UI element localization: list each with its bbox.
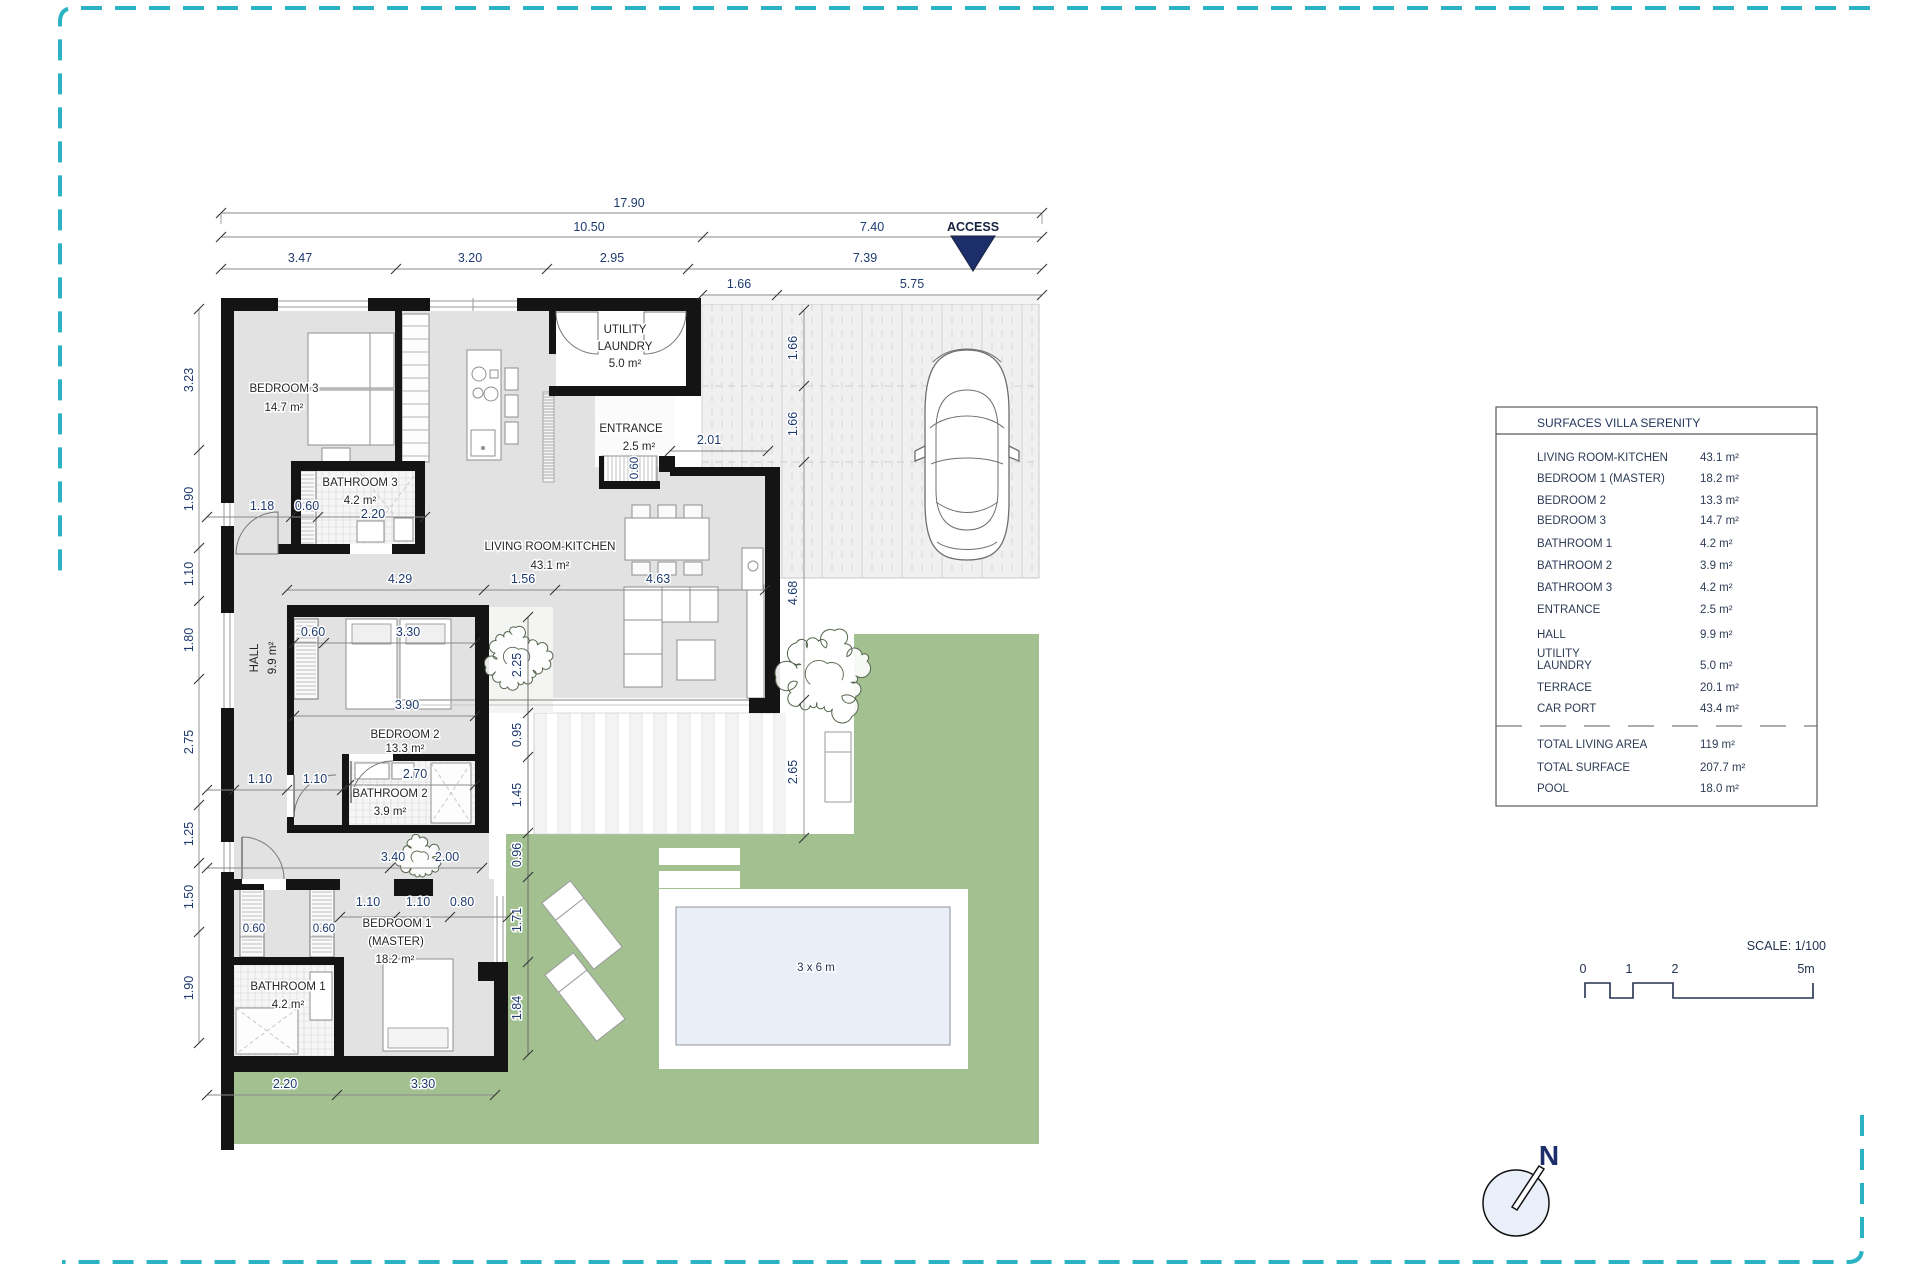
svg-text:ACCESS: ACCESS [947, 220, 999, 234]
svg-text:207.7 m²: 207.7 m² [1700, 762, 1746, 774]
svg-text:2.95: 2.95 [600, 251, 624, 265]
svg-text:5.0 m²: 5.0 m² [1700, 660, 1733, 672]
svg-text:18.2 m²: 18.2 m² [1700, 473, 1739, 485]
svg-text:(MASTER): (MASTER) [368, 936, 424, 948]
svg-text:4.68: 4.68 [786, 581, 800, 605]
svg-text:2.25: 2.25 [510, 653, 524, 677]
svg-text:2.5 m²: 2.5 m² [623, 441, 656, 453]
svg-text:HALL: HALL [249, 643, 261, 672]
svg-text:4.63: 4.63 [646, 572, 670, 586]
svg-text:0.95: 0.95 [510, 723, 524, 747]
svg-text:1.18: 1.18 [250, 499, 274, 513]
svg-text:0: 0 [1580, 962, 1587, 976]
svg-text:2.20: 2.20 [273, 1077, 297, 1091]
svg-text:2.65: 2.65 [786, 760, 800, 784]
svg-text:17.90: 17.90 [613, 196, 644, 210]
svg-text:3.47: 3.47 [288, 251, 312, 265]
svg-text:2.70: 2.70 [403, 767, 427, 781]
svg-text:BATHROOM 3: BATHROOM 3 [322, 477, 397, 489]
svg-text:43.1 m²: 43.1 m² [1700, 452, 1739, 464]
svg-text:BATHROOM 2: BATHROOM 2 [1537, 560, 1612, 572]
svg-text:BEDROOM 1 (MASTER): BEDROOM 1 (MASTER) [1537, 473, 1665, 485]
svg-text:0.96: 0.96 [510, 843, 524, 867]
svg-text:ENTRANCE: ENTRANCE [1537, 604, 1601, 616]
svg-text:9.9 m²: 9.9 m² [1700, 629, 1733, 641]
svg-text:ENTRANCE: ENTRANCE [599, 423, 663, 435]
svg-text:0.60: 0.60 [295, 499, 319, 513]
svg-text:2.5 m²: 2.5 m² [1700, 604, 1733, 616]
svg-text:0.60: 0.60 [243, 923, 265, 935]
svg-text:1.66: 1.66 [786, 412, 800, 436]
svg-text:BEDROOM 1: BEDROOM 1 [362, 918, 431, 930]
svg-text:1.25: 1.25 [182, 822, 196, 846]
svg-text:1.90: 1.90 [182, 976, 196, 1000]
svg-text:3.9 m²: 3.9 m² [1700, 560, 1733, 572]
svg-text:3.23: 3.23 [182, 368, 196, 392]
svg-text:3.90: 3.90 [395, 698, 419, 712]
svg-text:5.0 m²: 5.0 m² [609, 358, 642, 370]
svg-text:1.10: 1.10 [248, 772, 272, 786]
svg-text:TOTAL SURFACE: TOTAL SURFACE [1537, 762, 1630, 774]
svg-text:4.2 m²: 4.2 m² [344, 495, 377, 507]
svg-text:20.1 m²: 20.1 m² [1700, 682, 1739, 694]
svg-text:LAUNDRY: LAUNDRY [1537, 660, 1592, 672]
svg-text:0.60: 0.60 [301, 625, 325, 639]
svg-text:4.2 m²: 4.2 m² [1700, 582, 1733, 594]
svg-text:5.75: 5.75 [900, 277, 924, 291]
svg-text:BATHROOM 2: BATHROOM 2 [352, 788, 427, 800]
svg-text:N: N [1539, 1140, 1559, 1171]
svg-text:2: 2 [1672, 962, 1679, 976]
svg-text:1.80: 1.80 [182, 628, 196, 652]
svg-text:3 x 6 m: 3 x 6 m [797, 962, 835, 974]
svg-text:4.29: 4.29 [388, 572, 412, 586]
svg-text:13.3 m²: 13.3 m² [386, 743, 425, 755]
svg-text:2.20: 2.20 [361, 507, 385, 521]
svg-text:SCALE: 1/100: SCALE: 1/100 [1747, 939, 1826, 953]
svg-text:1.66: 1.66 [727, 277, 751, 291]
svg-text:3.30: 3.30 [411, 1077, 435, 1091]
svg-text:3.20: 3.20 [458, 251, 482, 265]
svg-text:4.2 m²: 4.2 m² [272, 999, 305, 1011]
svg-text:BEDROOM 2: BEDROOM 2 [1537, 495, 1606, 507]
svg-text:BEDROOM 3: BEDROOM 3 [1537, 515, 1606, 527]
svg-text:14.7 m²: 14.7 m² [265, 402, 304, 414]
svg-text:LIVING ROOM-KITCHEN: LIVING ROOM-KITCHEN [485, 541, 616, 553]
svg-text:2.00: 2.00 [435, 850, 459, 864]
svg-text:0.60: 0.60 [313, 923, 335, 935]
svg-text:BATHROOM 1: BATHROOM 1 [250, 981, 325, 993]
svg-text:7.40: 7.40 [860, 220, 884, 234]
svg-text:1.84: 1.84 [510, 996, 524, 1020]
svg-text:0.60: 0.60 [629, 457, 641, 479]
svg-text:TERRACE: TERRACE [1537, 682, 1592, 694]
svg-text:3.30: 3.30 [396, 625, 420, 639]
svg-text:1.50: 1.50 [182, 885, 196, 909]
svg-text:1.10: 1.10 [182, 562, 196, 586]
svg-text:LAUNDRY: LAUNDRY [598, 341, 653, 353]
svg-text:1.90: 1.90 [182, 487, 196, 511]
svg-text:18.2 m²: 18.2 m² [376, 954, 415, 966]
svg-text:1.66: 1.66 [786, 336, 800, 360]
svg-text:43.1 m²: 43.1 m² [531, 560, 570, 572]
svg-text:BATHROOM 3: BATHROOM 3 [1537, 582, 1612, 594]
svg-text:10.50: 10.50 [573, 220, 604, 234]
svg-text:BEDROOM 3: BEDROOM 3 [249, 383, 318, 395]
svg-text:SURFACES VILLA SERENITY: SURFACES VILLA SERENITY [1537, 416, 1700, 430]
svg-text:BATHROOM 1: BATHROOM 1 [1537, 538, 1612, 550]
svg-text:9.9 m²: 9.9 m² [267, 642, 279, 675]
svg-text:13.3 m²: 13.3 m² [1700, 495, 1739, 507]
svg-text:3.40: 3.40 [381, 850, 405, 864]
svg-text:1.10: 1.10 [406, 895, 430, 909]
svg-text:HALL: HALL [1537, 629, 1566, 641]
svg-text:7.39: 7.39 [853, 251, 877, 265]
svg-text:1.10: 1.10 [303, 772, 327, 786]
svg-text:1.56: 1.56 [511, 572, 535, 586]
svg-text:1.71: 1.71 [510, 908, 524, 932]
svg-text:TOTAL LIVING AREA: TOTAL LIVING AREA [1537, 739, 1648, 751]
svg-text:UTILITY: UTILITY [1537, 648, 1580, 660]
svg-text:18.0 m²: 18.0 m² [1700, 783, 1739, 795]
svg-text:4.2 m²: 4.2 m² [1700, 538, 1733, 550]
svg-text:14.7 m²: 14.7 m² [1700, 515, 1739, 527]
svg-text:1.45: 1.45 [510, 783, 524, 807]
svg-text:1.10: 1.10 [356, 895, 380, 909]
svg-text:POOL: POOL [1537, 783, 1570, 795]
svg-text:CAR PORT: CAR PORT [1537, 703, 1596, 715]
svg-text:2.01: 2.01 [697, 433, 721, 447]
svg-text:UTILITY: UTILITY [604, 324, 647, 336]
svg-text:0.80: 0.80 [450, 895, 474, 909]
svg-text:2.75: 2.75 [182, 730, 196, 754]
svg-text:5m: 5m [1797, 962, 1814, 976]
svg-text:1: 1 [1626, 962, 1633, 976]
svg-text:3.9 m²: 3.9 m² [374, 806, 407, 818]
svg-text:119 m²: 119 m² [1700, 739, 1735, 751]
svg-text:LIVING ROOM-KITCHEN: LIVING ROOM-KITCHEN [1537, 452, 1668, 464]
svg-text:43.4 m²: 43.4 m² [1700, 703, 1739, 715]
svg-text:BEDROOM 2: BEDROOM 2 [370, 729, 439, 741]
